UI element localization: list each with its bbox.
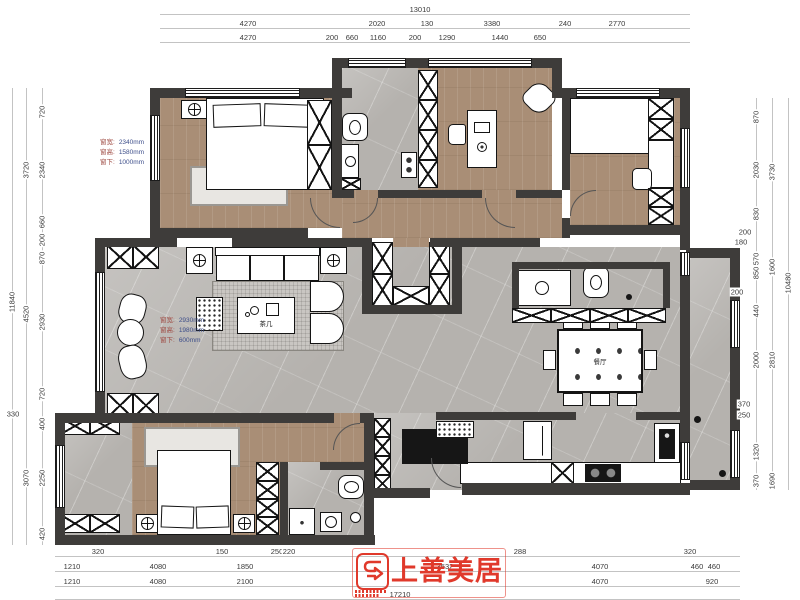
wall [462, 483, 690, 495]
monitor [474, 122, 490, 133]
dim-label: 4270 [239, 33, 258, 42]
desk-plant [477, 142, 487, 152]
dim-label: 200 [38, 233, 47, 248]
dim-label: 200 [325, 33, 340, 42]
dim-label: 420 [38, 527, 47, 542]
wall [512, 262, 670, 269]
toilet-bowl [349, 120, 361, 135]
dim-label: 200 [408, 33, 423, 42]
guest-bath-counter [513, 270, 571, 306]
dim-label: 13010 [409, 5, 432, 14]
toilet [342, 113, 368, 141]
floor-drain [626, 294, 632, 300]
dim-label: 240 [558, 19, 573, 28]
dim-label: 3730 [768, 163, 777, 182]
dim-label: 1290 [438, 33, 457, 42]
dim-label: 200 [738, 228, 753, 237]
wardrobe [256, 499, 279, 517]
wall [436, 412, 576, 420]
dim-label: 460 [690, 562, 705, 571]
brand-logo-icon [356, 553, 389, 590]
balcony-cabinet [90, 514, 120, 533]
dim-label: 180 [734, 238, 749, 247]
dim-line [160, 42, 690, 43]
annotation-label: 窗下: [160, 336, 175, 346]
dim-label: 870 [752, 110, 761, 125]
dim-label: 2020 [368, 19, 387, 28]
dim-label: 150 [215, 547, 230, 556]
dim-label: 11840 [8, 291, 17, 313]
dining-chair [617, 393, 637, 406]
brand-name: 上善美居 [391, 549, 503, 588]
sofa-cushion [250, 255, 284, 281]
dim-label: 3720 [22, 161, 31, 180]
dim-line [756, 98, 757, 490]
wardrobe [648, 98, 674, 119]
dim-label: 1690 [768, 472, 777, 491]
wall [562, 225, 690, 235]
dim-label: 3380 [483, 19, 502, 28]
wall [680, 412, 690, 442]
armchair [310, 313, 344, 344]
dim-label: 850 [752, 266, 761, 281]
window [55, 445, 65, 508]
bathroom-sink [341, 144, 359, 178]
kitchen-sink [659, 429, 675, 459]
annotation-label: 窗下: [100, 158, 115, 168]
dim-label: 220 [282, 547, 297, 556]
dim-label: 2100 [236, 577, 255, 586]
water-heater [401, 152, 417, 178]
annotation-label: 窗高: [100, 148, 115, 158]
dim-label: 370 [752, 474, 761, 489]
wardrobe [307, 145, 332, 190]
wall [663, 262, 670, 308]
nightstand [233, 514, 255, 533]
dim-label: 440 [752, 304, 761, 319]
dim-label: 720 [38, 387, 47, 402]
wardrobe [648, 207, 674, 225]
room-label: 餐厅 [594, 356, 607, 366]
living-cabinet [133, 245, 159, 269]
dim-label: 650 [533, 33, 548, 42]
dim-label: 2250 [38, 469, 47, 488]
annotation-value: 2930mm [179, 316, 204, 326]
sideboard [590, 308, 628, 323]
vanity [289, 508, 315, 535]
wall [378, 190, 418, 198]
dim-label: 10480 [784, 272, 793, 295]
sink-basin [535, 281, 549, 295]
dining-chair [590, 393, 610, 406]
wall [132, 413, 334, 423]
pillow [264, 103, 313, 128]
wall [690, 480, 736, 490]
dim-label: 1600 [768, 258, 777, 277]
bathroom-sink [320, 512, 342, 532]
teapot [250, 306, 259, 315]
kitchen-cabinet [551, 462, 574, 484]
wall [150, 228, 308, 238]
dim-label: 400 [38, 417, 47, 432]
dining-chair [563, 393, 583, 406]
lamp-icon [327, 254, 340, 267]
dim-label: 660 [38, 215, 47, 230]
nightstand [136, 514, 158, 533]
floor-plan: 1301042702020130338024027704270200660116… [0, 0, 800, 600]
bathroom-cabinet [341, 178, 361, 190]
sink-basin [325, 516, 337, 528]
dim-label: 4080 [149, 577, 168, 586]
toilet-bowl [344, 481, 359, 493]
wall [686, 248, 740, 258]
wall [374, 488, 430, 498]
fridge [523, 421, 552, 460]
hall-cabinet [374, 418, 391, 437]
desk-chair [632, 168, 652, 190]
floor-right-balcony [690, 258, 730, 490]
dim-label: 4070 [591, 577, 610, 586]
wall [320, 462, 364, 470]
annotation-label: 窗宽: [100, 138, 115, 148]
dim-label: 320 [683, 547, 698, 556]
wall [562, 98, 570, 190]
wardrobe [256, 517, 279, 535]
dim-label: 4520 [22, 305, 31, 324]
wardrobe [648, 119, 674, 140]
desk-chair [448, 124, 466, 145]
shoe-cabinet [393, 286, 429, 306]
lamp-icon [188, 103, 201, 116]
window-annotation: 窗宽:2340mm窗高:1580mm窗下:1000mm [100, 138, 144, 168]
wardrobe [307, 100, 332, 145]
sideboard [628, 308, 666, 323]
dim-label: 4070 [591, 562, 610, 571]
annotation-value: 1580mm [119, 148, 144, 158]
sideboard [551, 308, 590, 323]
window [185, 88, 300, 98]
dim-line [772, 98, 773, 490]
dim-label: 2340 [38, 161, 47, 180]
dim-line [12, 88, 13, 545]
stool [350, 512, 361, 523]
dim-label: 870 [38, 251, 47, 266]
window [150, 115, 160, 181]
dim-label: 830 [752, 207, 761, 222]
dim-label: 1210 [63, 577, 82, 586]
wall [452, 238, 462, 314]
wall [55, 535, 375, 545]
wall [342, 190, 354, 198]
annotation-value: 1000mm [119, 158, 144, 168]
wall [512, 262, 519, 308]
window [428, 58, 532, 68]
nightstand [181, 100, 207, 119]
study-wardrobe [418, 130, 438, 160]
wardrobe [256, 462, 279, 481]
window [680, 252, 690, 276]
dim-label: 720 [38, 105, 47, 120]
dim-label: 2810 [768, 351, 777, 370]
window [576, 88, 660, 98]
pillow [161, 505, 195, 528]
wall [364, 413, 374, 545]
dim-label: 570 [752, 252, 761, 267]
dining-chair [543, 350, 556, 370]
dim-label: 1160 [369, 33, 387, 42]
dim-label: 2930 [38, 313, 47, 332]
window [680, 128, 690, 188]
toilet [338, 475, 364, 499]
wall [332, 58, 342, 198]
wall [232, 238, 372, 247]
dim-label: 460 [707, 562, 722, 571]
wall [418, 190, 482, 198]
wall [362, 238, 372, 314]
dim-label: 1440 [491, 33, 510, 42]
dim-label: 330 [6, 410, 21, 419]
annotation-label: 窗高: [160, 326, 175, 336]
sofa-cushion [216, 255, 250, 281]
wall [362, 305, 462, 314]
toilet [583, 266, 609, 298]
dim-label: 250 [737, 411, 752, 420]
window [730, 300, 740, 348]
annotation-value: 2340mm [119, 138, 144, 148]
wardrobe [648, 188, 674, 207]
wardrobe [256, 481, 279, 499]
pillow [213, 103, 262, 128]
window-annotation: 窗宽:2930mm窗高:1980mm窗下:600mm [160, 316, 204, 346]
study-wardrobe [418, 70, 438, 100]
dim-label: 1850 [236, 562, 255, 571]
sideboard [512, 308, 551, 323]
study-wardrobe [418, 100, 438, 130]
shoe-cabinet [372, 274, 393, 306]
brand-stamp: 上善美居 [352, 548, 506, 598]
wall [636, 412, 680, 420]
sofa-cushion [284, 255, 319, 281]
dim-label: 4080 [149, 562, 168, 571]
desk [467, 110, 497, 168]
dim-label: 1210 [63, 562, 82, 571]
stove [585, 464, 621, 482]
floor-drain [719, 470, 726, 477]
wall [55, 413, 132, 423]
brand-small-text [355, 594, 379, 597]
dim-label: 3070 [22, 469, 31, 488]
dim-label: 660 [345, 33, 360, 42]
shoe-cabinet [372, 242, 393, 274]
lamp-icon [238, 517, 251, 530]
brand-small-text [355, 590, 386, 593]
coffee-table-tray [266, 303, 279, 316]
sink-basin [345, 156, 356, 167]
dim-label: 1320 [752, 443, 761, 462]
dim-line [160, 28, 690, 29]
window [95, 272, 105, 392]
dim-line [160, 14, 690, 15]
door-mat [436, 421, 474, 438]
dim-label: 2030 [752, 161, 761, 180]
floor-drain [694, 416, 701, 423]
wall [552, 58, 562, 98]
lamp-icon [193, 254, 206, 267]
wall [95, 238, 177, 247]
bed [570, 98, 656, 154]
wall [680, 276, 690, 412]
annotation-value: 600mm [179, 336, 204, 346]
dim-label: 370 [737, 400, 752, 409]
side-table [186, 247, 213, 274]
dim-label: 4270 [239, 19, 258, 28]
annotation-value: 1980mm [179, 326, 204, 336]
toilet-bowl [590, 275, 602, 290]
tea-table [117, 319, 144, 346]
hall-cabinet [374, 456, 391, 475]
shoe-cabinet [429, 274, 450, 306]
dim-label: 130 [420, 19, 435, 28]
dim-label: 288 [513, 547, 528, 556]
wall [462, 238, 540, 247]
window [730, 430, 740, 478]
dim-label: 920 [705, 577, 720, 586]
dim-label: 2000 [752, 351, 761, 370]
dim-label: 2770 [608, 19, 627, 28]
annotation-label: 窗宽: [160, 316, 175, 326]
wall [280, 462, 288, 545]
dining-chair [644, 350, 657, 370]
side-table [320, 247, 347, 274]
lamp-icon [141, 517, 154, 530]
pillow [196, 505, 230, 528]
dim-label: 320 [91, 547, 106, 556]
window [680, 442, 690, 480]
teacup [245, 312, 250, 317]
armchair [310, 281, 344, 312]
window [348, 58, 406, 68]
room-label: 茶几 [260, 318, 273, 328]
study-wardrobe [418, 160, 438, 188]
dim-label: 200 [730, 288, 745, 297]
hall-cabinet [374, 437, 391, 456]
living-cabinet [107, 245, 133, 269]
wall [516, 190, 562, 198]
